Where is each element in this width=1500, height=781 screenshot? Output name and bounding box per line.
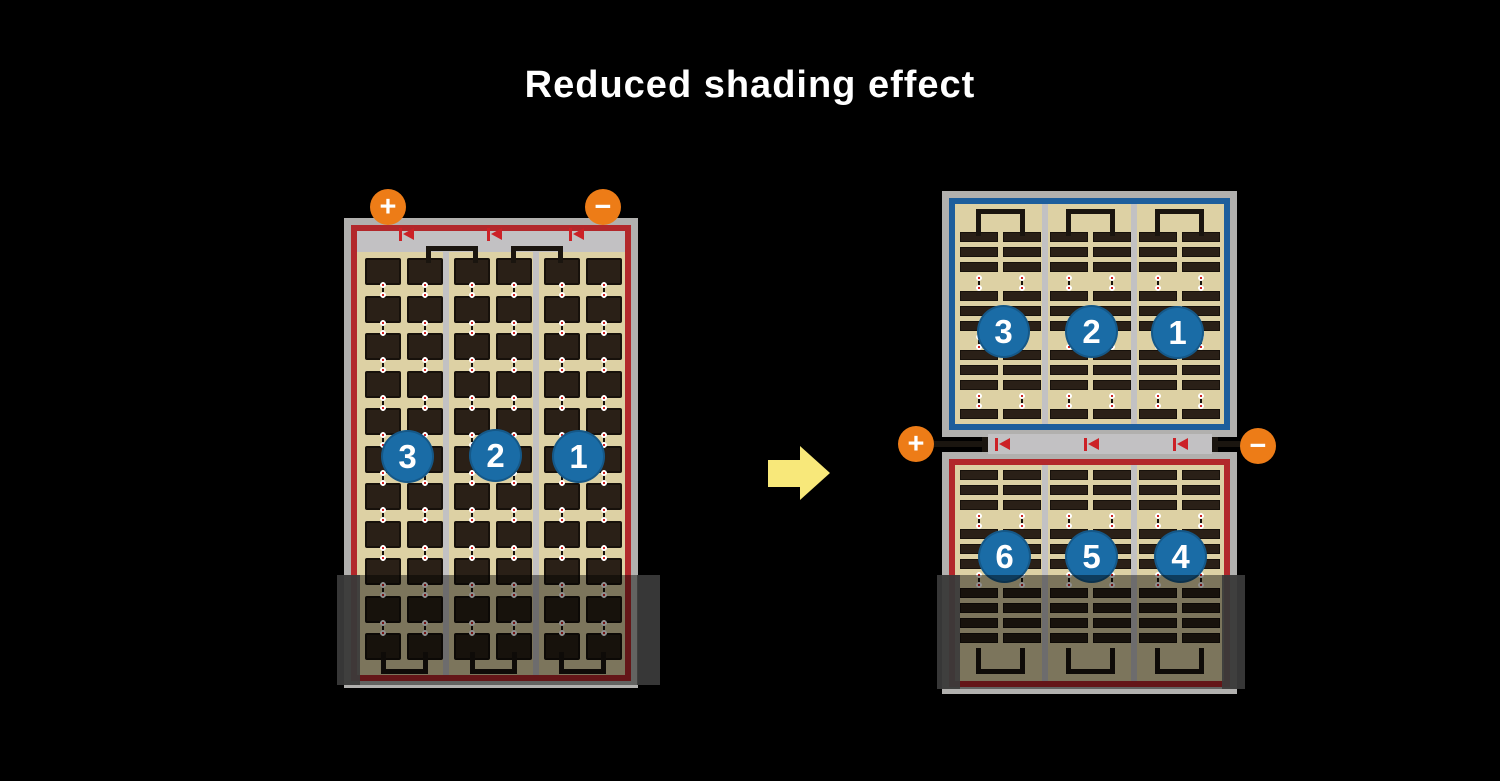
cell-connector-dots (468, 320, 476, 336)
right-positive-terminal-icon: + (898, 426, 934, 462)
cell-connector-dots (600, 395, 608, 411)
diode-triangle (491, 228, 502, 240)
badge-label: 3 (994, 313, 1012, 351)
diode-triangle (1088, 438, 1099, 450)
solar-cell-bar (1139, 500, 1177, 510)
solar-cell (586, 483, 622, 510)
cell-connector-dots (379, 395, 387, 411)
cell-connector-dots (1108, 393, 1116, 409)
solar-cell-bar (960, 291, 998, 301)
solar-cell-bar (1050, 247, 1088, 257)
solar-cell (365, 258, 401, 285)
badge-label: 6 (995, 538, 1013, 576)
solar-cell-bar (960, 247, 998, 257)
solar-cell (496, 333, 532, 360)
solar-cell-bar (1093, 262, 1131, 272)
cell-connector-dots (468, 282, 476, 298)
solar-cell (407, 333, 443, 360)
cell-connector-dots (558, 395, 566, 411)
interconnect-bracket (426, 246, 478, 263)
cell-connector-dots (421, 507, 429, 523)
cell-connector-dots (975, 393, 983, 409)
solar-cell (407, 483, 443, 510)
cell-connector-dots (1108, 275, 1116, 291)
solar-cell (496, 483, 532, 510)
bypass-diode-icon (487, 228, 503, 241)
shading-overlay-left (337, 575, 660, 685)
solar-cell (365, 483, 401, 510)
cell-connector-dots (600, 545, 608, 561)
cell-connector-dots (510, 282, 518, 298)
bypass-diode-icon (1173, 438, 1189, 451)
solar-cell (586, 371, 622, 398)
cell-connector-dots (1154, 393, 1162, 409)
cell-connector-dots (421, 395, 429, 411)
solar-cell (407, 371, 443, 398)
cell-connector-dots (379, 357, 387, 373)
cell-connector-dots (600, 357, 608, 373)
cell-connector-dots (510, 395, 518, 411)
solar-cell-bar (1139, 262, 1177, 272)
badge-label: 2 (1082, 313, 1100, 351)
solar-cell-bar (1050, 409, 1088, 419)
solar-cell (544, 483, 580, 510)
bypass-diode-icon (1084, 438, 1100, 451)
solar-cell-bar (1139, 485, 1177, 495)
cell-connector-dots (1197, 393, 1205, 409)
cell-connector-dots (600, 507, 608, 523)
cell-connector-dots (975, 513, 983, 529)
solar-cell (586, 408, 622, 435)
cell-connector-dots (600, 470, 608, 486)
bypass-diode-icon (995, 438, 1011, 451)
cell-connector-dots (558, 357, 566, 373)
cell-connector-dots (468, 507, 476, 523)
solar-cell (544, 296, 580, 323)
cell-connector-dots (421, 282, 429, 298)
shade-edge (337, 575, 360, 685)
cell-connector-dots (558, 545, 566, 561)
cell-connector-dots (468, 545, 476, 561)
diode-triangle (403, 228, 414, 240)
solar-cell-bar (1182, 470, 1220, 480)
plus-symbol: + (908, 430, 925, 459)
badge-label: 1 (569, 438, 587, 476)
solar-cell-bar (1093, 470, 1131, 480)
cell-connector-dots (468, 357, 476, 373)
badge-label: 3 (398, 438, 416, 476)
solar-cell-bar (1093, 291, 1131, 301)
cell-connector-dots (421, 320, 429, 336)
badge-label: 2 (486, 437, 504, 475)
solar-cell-bar (1050, 291, 1088, 301)
solar-cell-bar (1139, 470, 1177, 480)
diode-cathode-bar (569, 228, 572, 241)
solar-cell-bar (1093, 485, 1131, 495)
solar-cell (586, 333, 622, 360)
diagram-canvas: Reduced shading effect + − + − 3 2 1 3 2… (0, 0, 1500, 781)
solar-cell (496, 371, 532, 398)
solar-cell (454, 296, 490, 323)
solar-cell-bar (1182, 500, 1220, 510)
diode-cathode-bar (1173, 438, 1176, 451)
solar-cell-bar (1139, 291, 1177, 301)
cell-connector-dots (1197, 513, 1205, 529)
terminal-wire (933, 441, 988, 447)
solar-cell-bar (1050, 485, 1088, 495)
solar-cell (454, 483, 490, 510)
cell-connector-dots (468, 395, 476, 411)
solar-cell (544, 521, 580, 548)
cell-connector-dots (510, 545, 518, 561)
cell-connector-dots (510, 357, 518, 373)
solar-cell-bar (960, 500, 998, 510)
solar-cell-bar (960, 485, 998, 495)
solar-cell-bar (1003, 500, 1041, 510)
right-negative-terminal-icon: − (1240, 428, 1276, 464)
badge-label: 1 (1168, 314, 1186, 352)
solar-cell-bar (1182, 247, 1220, 257)
solar-cell-bar (1050, 500, 1088, 510)
solar-cell-bar (1139, 380, 1177, 390)
cell-connector-dots (1154, 513, 1162, 529)
solar-cell-bar (1182, 365, 1220, 375)
solar-cell-bar (1003, 262, 1041, 272)
arrow-head (800, 446, 830, 500)
solar-cell-bar (1003, 409, 1041, 419)
string-number-badge: 1 (1151, 306, 1204, 359)
solar-cell (365, 371, 401, 398)
solar-cell (365, 296, 401, 323)
diode-cathode-bar (995, 438, 998, 451)
cell-connector-dots (975, 275, 983, 291)
solar-cell-bar (1050, 470, 1088, 480)
solar-cell-bar (1093, 380, 1131, 390)
solar-cell-bar (1139, 409, 1177, 419)
cell-connector-dots (1018, 393, 1026, 409)
minus-symbol: − (1250, 432, 1267, 461)
cell-connector-dots (1197, 275, 1205, 291)
string-divider (1042, 204, 1048, 424)
solar-cell-bar (1182, 485, 1220, 495)
string-number-badge: 2 (1065, 305, 1118, 358)
cell-connector-dots (1065, 513, 1073, 529)
left-positive-terminal-icon: + (370, 189, 406, 225)
string-number-badge: 2 (469, 429, 522, 482)
cell-connector-dots (558, 282, 566, 298)
solar-cell (454, 521, 490, 548)
shading-overlay-right (937, 575, 1245, 689)
arrow-shaft (768, 460, 801, 487)
cell-connector-dots (421, 357, 429, 373)
solar-cell-bar (1093, 247, 1131, 257)
solar-cell-bar (960, 365, 998, 375)
solar-cell-bar (1139, 365, 1177, 375)
solar-cell (365, 408, 401, 435)
solar-cell (544, 333, 580, 360)
solar-cell-bar (1050, 365, 1088, 375)
cell-connector-dots (379, 320, 387, 336)
string-divider (1131, 204, 1137, 424)
solar-cell (586, 258, 622, 285)
solar-cell (496, 296, 532, 323)
cell-connector-dots (558, 320, 566, 336)
solar-cell (454, 371, 490, 398)
cell-connector-dots (510, 320, 518, 336)
shade-edge (937, 575, 960, 689)
shade-edge (1222, 575, 1245, 689)
solar-cell (586, 296, 622, 323)
cell-connector-dots (1018, 275, 1026, 291)
interconnect-bracket (1155, 209, 1204, 236)
string-number-badge: 3 (381, 430, 434, 483)
diode-triangle (573, 228, 584, 240)
solar-cell-bar (1182, 409, 1220, 419)
solar-cell-bar (1093, 365, 1131, 375)
cell-connector-dots (379, 545, 387, 561)
page-title: Reduced shading effect (0, 64, 1500, 107)
cell-connector-dots (558, 507, 566, 523)
cell-connector-dots (1018, 513, 1026, 529)
diode-cathode-bar (1084, 438, 1087, 451)
solar-cell-bar (1003, 380, 1041, 390)
diode-triangle (999, 438, 1010, 450)
solar-cell (544, 371, 580, 398)
solar-cell-bar (960, 262, 998, 272)
solar-cell (407, 296, 443, 323)
shade-edge (637, 575, 660, 685)
solar-cell-bar (1139, 247, 1177, 257)
cell-connector-dots (600, 320, 608, 336)
interconnect-bracket (1066, 209, 1115, 236)
badge-label: 4 (1171, 538, 1189, 576)
solar-cell-bar (1003, 247, 1041, 257)
solar-cell-bar (960, 470, 998, 480)
solar-cell (365, 333, 401, 360)
bypass-diode-icon (399, 228, 415, 241)
diode-cathode-bar (399, 228, 402, 241)
cell-connector-dots (379, 507, 387, 523)
solar-cell (496, 521, 532, 548)
solar-cell-bar (1003, 485, 1041, 495)
solar-cell-bar (1182, 291, 1220, 301)
string-number-badge: 3 (977, 305, 1030, 358)
plus-symbol: + (380, 193, 397, 222)
bypass-diode-icon (569, 228, 585, 241)
cell-connector-dots (1154, 275, 1162, 291)
cell-connector-dots (379, 282, 387, 298)
solar-cell-bar (1182, 380, 1220, 390)
left-negative-terminal-icon: − (585, 189, 621, 225)
solar-cell-bar (1050, 262, 1088, 272)
minus-symbol: − (595, 193, 612, 222)
solar-cell-bar (1050, 380, 1088, 390)
solar-cell-bar (960, 409, 998, 419)
interconnect-bracket (976, 209, 1025, 236)
string-number-badge: 1 (552, 430, 605, 483)
cell-connector-dots (600, 282, 608, 298)
solar-cell-bar (1182, 262, 1220, 272)
diode-triangle (1177, 438, 1188, 450)
interconnect-bracket (511, 246, 563, 263)
solar-cell-bar (960, 380, 998, 390)
cell-connector-dots (1108, 513, 1116, 529)
solar-cell (365, 521, 401, 548)
solar-cell (586, 521, 622, 548)
cell-connector-dots (1065, 275, 1073, 291)
solar-cell-bar (1093, 500, 1131, 510)
solar-cell-bar (1003, 291, 1041, 301)
badge-label: 5 (1082, 538, 1100, 576)
cell-connector-dots (510, 507, 518, 523)
solar-cell-bar (1093, 409, 1131, 419)
solar-cell (454, 333, 490, 360)
cell-connector-dots (1065, 393, 1073, 409)
solar-cell-bar (1003, 365, 1041, 375)
solar-cell-bar (1003, 470, 1041, 480)
cell-connector-dots (421, 545, 429, 561)
solar-cell (407, 521, 443, 548)
diode-cathode-bar (487, 228, 490, 241)
